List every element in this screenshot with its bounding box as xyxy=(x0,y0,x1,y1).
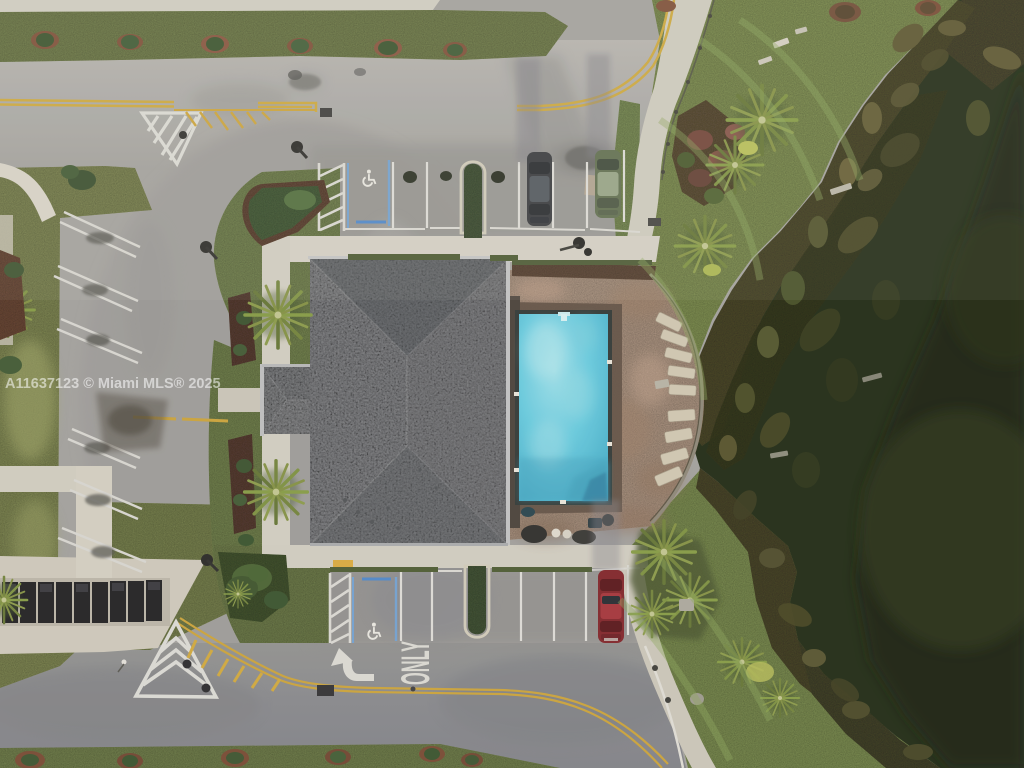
svg-text:A11637123 © Miami MLS® 2025: A11637123 © Miami MLS® 2025 xyxy=(5,376,221,392)
